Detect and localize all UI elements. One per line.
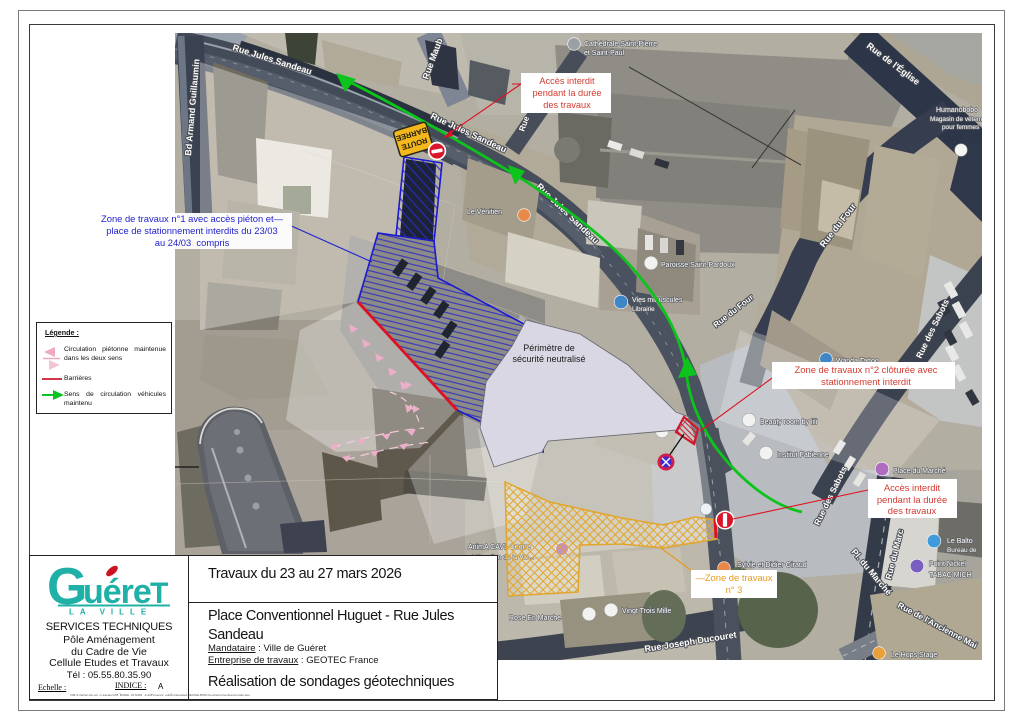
svg-text:Rose En Marche: Rose En Marche — [509, 615, 561, 622]
svg-text:Périmètre de: Périmètre de — [523, 343, 575, 353]
svg-text:des travaux: des travaux — [888, 505, 937, 516]
svg-text:Vingt Trois Mille: Vingt Trois Mille — [622, 608, 671, 615]
svg-text:Point Nickel: Point Nickel — [929, 561, 966, 568]
svg-text:Le Vénitien: Le Vénitien — [467, 209, 502, 216]
svg-text:Beauty room by lili: Beauty room by lili — [760, 419, 818, 426]
svg-text:LA VILLE: LA VILLE — [69, 608, 152, 617]
svg-text:Le Hops Stage: Le Hops Stage — [891, 652, 937, 659]
svg-text:Magasin de vêtements: Magasin de vêtements — [930, 116, 982, 123]
svg-text:Librairie: Librairie — [632, 306, 655, 313]
svg-text:stationnement interdit: stationnement interdit — [821, 376, 911, 387]
svg-text:n° 3: n° 3 — [726, 584, 743, 595]
svg-text:Institut Fabienne: Institut Fabienne — [777, 452, 829, 459]
svg-text:Le Balto: Le Balto — [947, 538, 973, 545]
svg-text:Accès interdit: Accès interdit — [539, 76, 595, 86]
svg-text:Bureau de: Bureau de — [947, 547, 977, 554]
svg-text:pendant la durée: pendant la durée — [877, 494, 947, 505]
svg-text:Paroisse Saint-Pardoux: Paroisse Saint-Pardoux — [661, 262, 735, 269]
svg-text:pendant la durée: pendant la durée — [533, 88, 602, 98]
svg-text:Cathédrale Saint-Pierre: Cathédrale Saint-Pierre — [584, 41, 657, 48]
svg-text:sécurité neutralisé: sécurité neutralisé — [512, 354, 585, 364]
svg-text:Accès interdit: Accès interdit — [884, 482, 941, 493]
svg-text:Zone de travaux n°2 clôturée a: Zone de travaux n°2 clôturée avec — [795, 364, 938, 375]
svg-text:et Saint-Paul: et Saint-Paul — [584, 50, 625, 57]
svg-text:TABAC MICH: TABAC MICH — [929, 572, 972, 579]
svg-text:Sylvie et Didier Giraud: Sylvie et Didier Giraud — [737, 562, 807, 569]
svg-text:Humanobobo: Humanobobo — [936, 107, 978, 114]
svg-text:Place du Marché: Place du Marché — [893, 468, 946, 475]
svg-text:des travaux: des travaux — [543, 100, 591, 110]
svg-text:pour femmes: pour femmes — [942, 124, 979, 131]
svg-text:—Zone de travaux: —Zone de travaux — [695, 572, 772, 583]
